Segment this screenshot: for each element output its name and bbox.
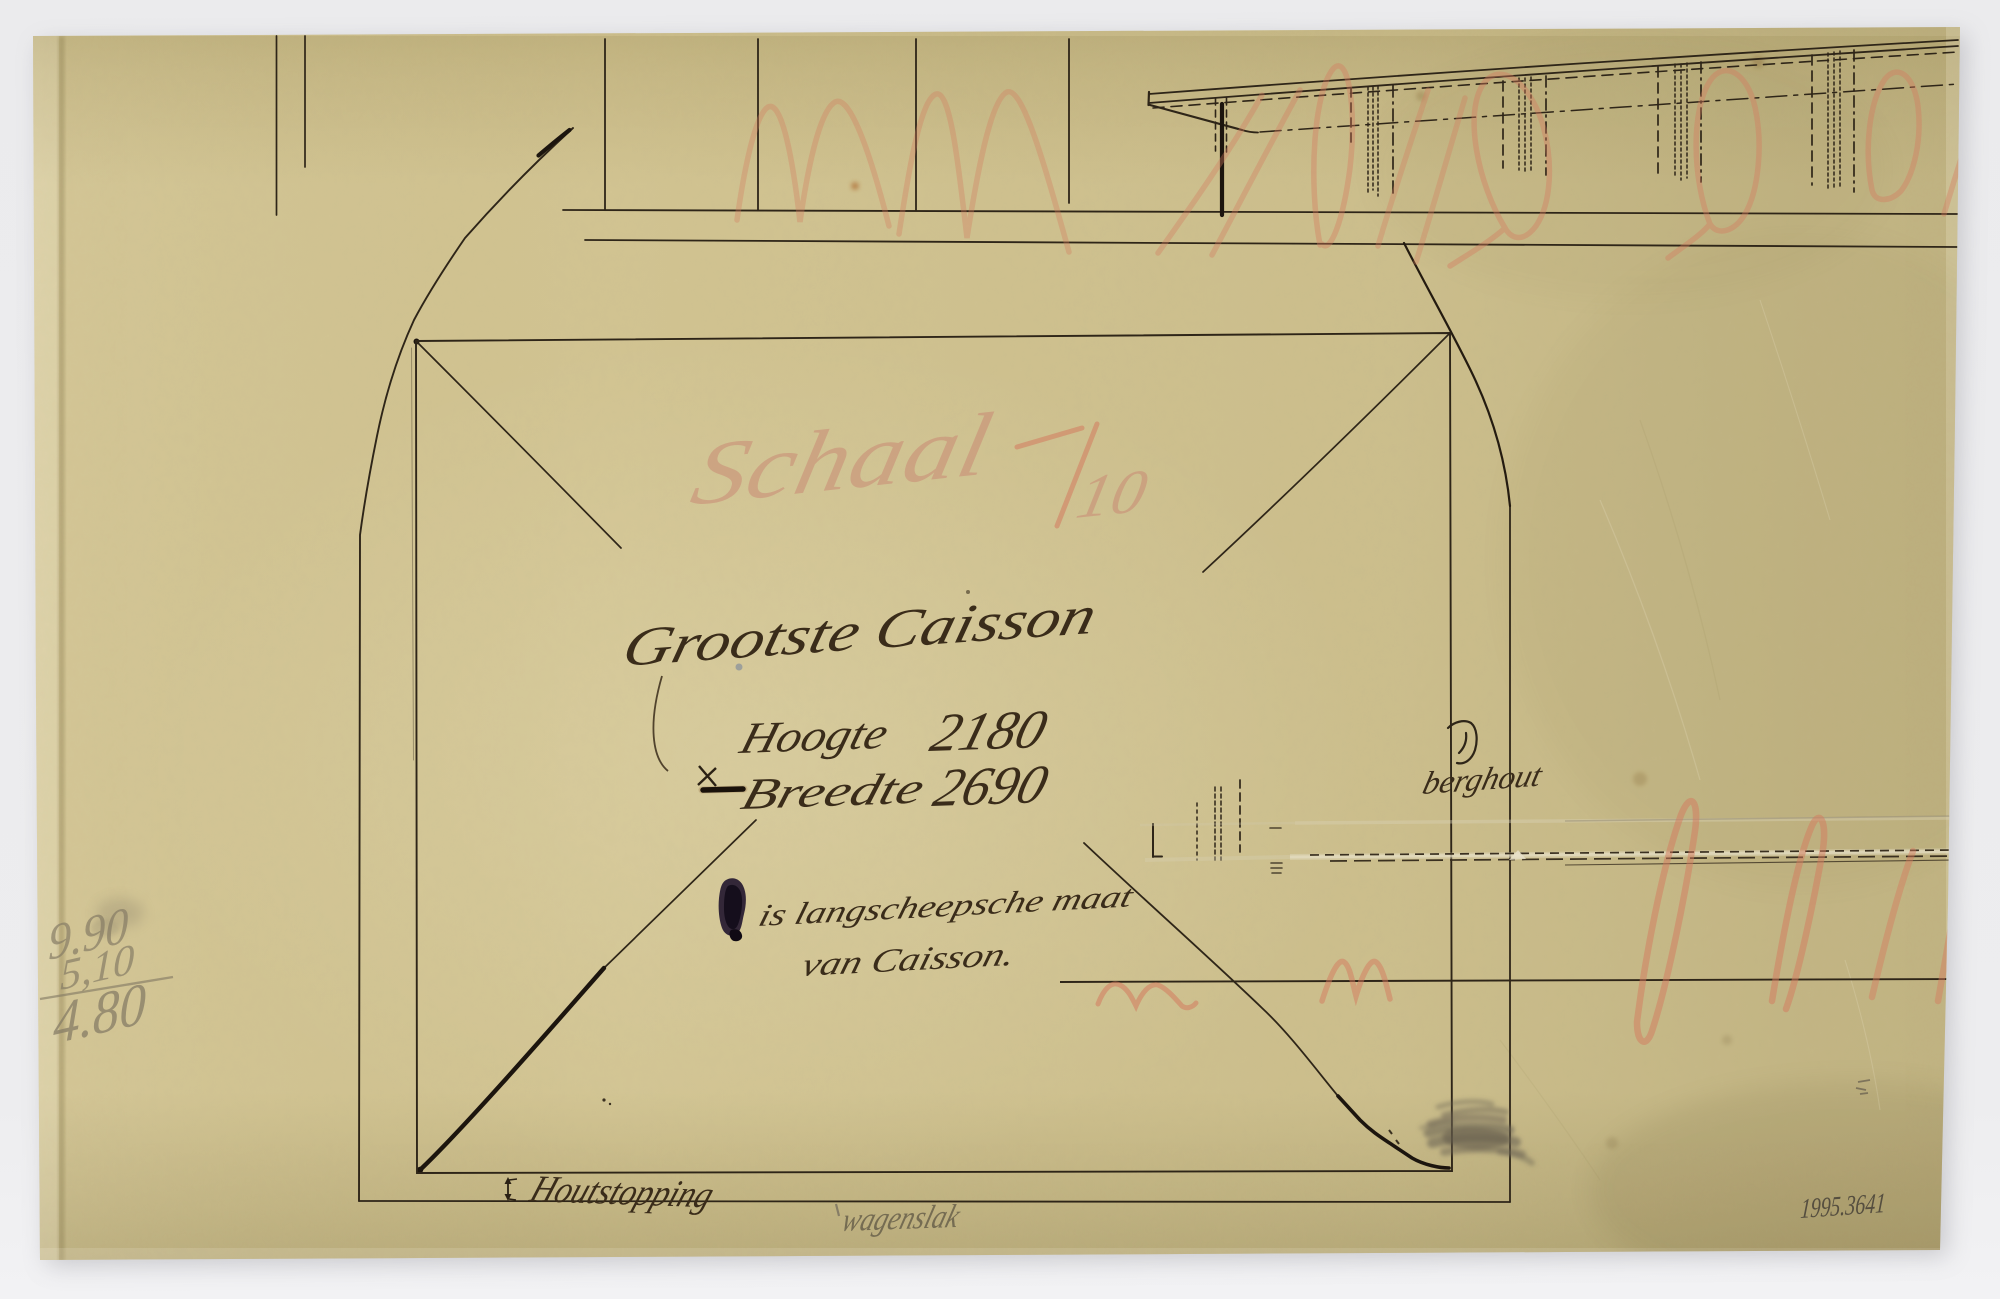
svg-text:Hoogte: Hoogte <box>734 709 894 763</box>
svg-text:Breedte: Breedte <box>736 763 930 819</box>
svg-text:2690: 2690 <box>928 754 1055 818</box>
svg-text:2180: 2180 <box>925 699 1054 763</box>
svg-text:Houtstopping: Houtstopping <box>524 1168 720 1216</box>
svg-text:wagenslak: wagenslak <box>838 1198 965 1239</box>
svg-text:1995.3641: 1995.3641 <box>1800 1188 1887 1225</box>
